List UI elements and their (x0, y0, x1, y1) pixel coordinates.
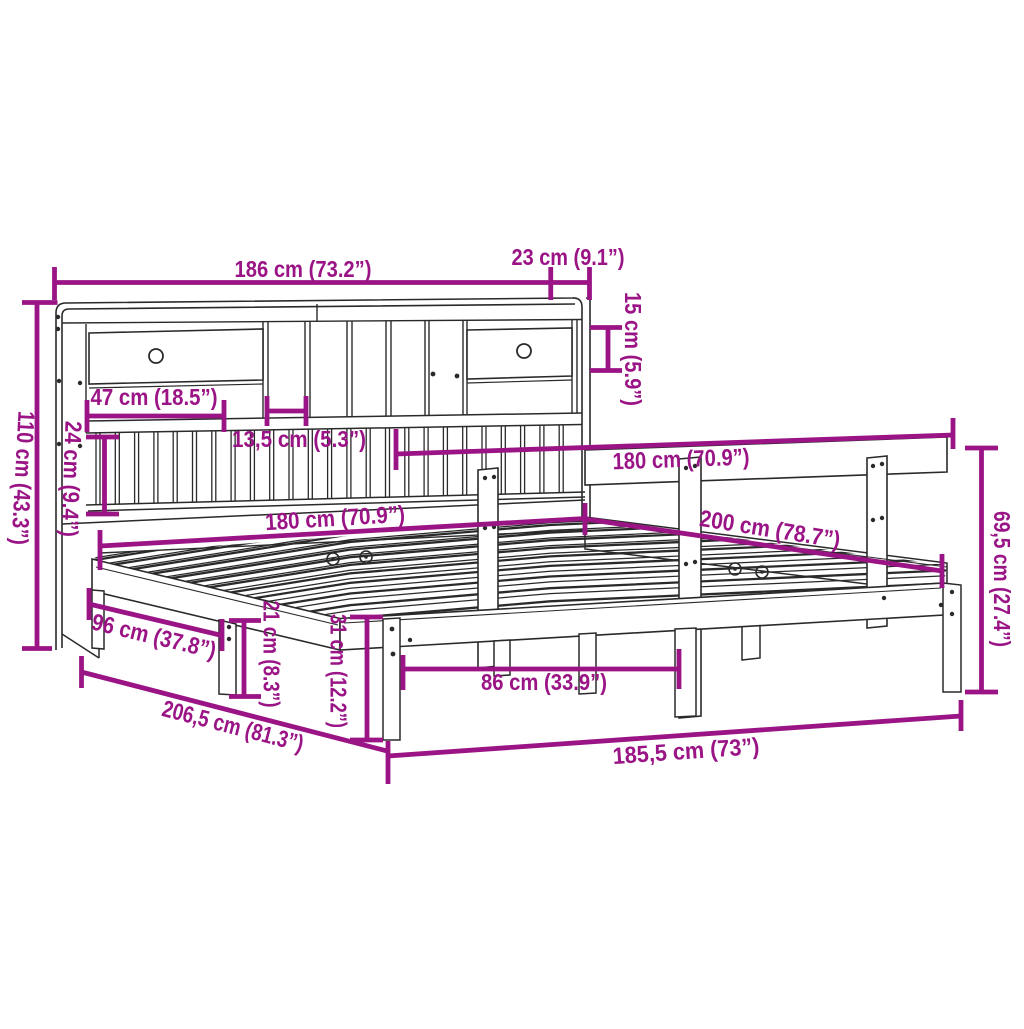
svg-text:31 cm (12.2”): 31 cm (12.2”) (326, 614, 352, 728)
svg-text:24 cm (9.4”): 24 cm (9.4”) (56, 421, 86, 538)
svg-text:86 cm (33.9”): 86 cm (33.9”) (481, 669, 607, 695)
svg-text:110 cm (43.3”): 110 cm (43.3”) (7, 410, 40, 545)
svg-text:15 cm (5.9”): 15 cm (5.9”) (620, 292, 646, 406)
svg-text:69,5 cm (27.4”): 69,5 cm (27.4”) (989, 511, 1015, 647)
svg-text:21 cm (8.3”): 21 cm (8.3”) (259, 601, 285, 708)
svg-text:186 cm (73.2”): 186 cm (73.2”) (235, 256, 372, 282)
svg-text:180 cm (70.9”): 180 cm (70.9”) (612, 444, 750, 475)
svg-text:47 cm (18.5”): 47 cm (18.5”) (91, 384, 218, 410)
svg-text:13,5 cm (5.3”): 13,5 cm (5.3”) (232, 426, 366, 452)
svg-text:23 cm (9.1”): 23 cm (9.1”) (512, 244, 625, 270)
